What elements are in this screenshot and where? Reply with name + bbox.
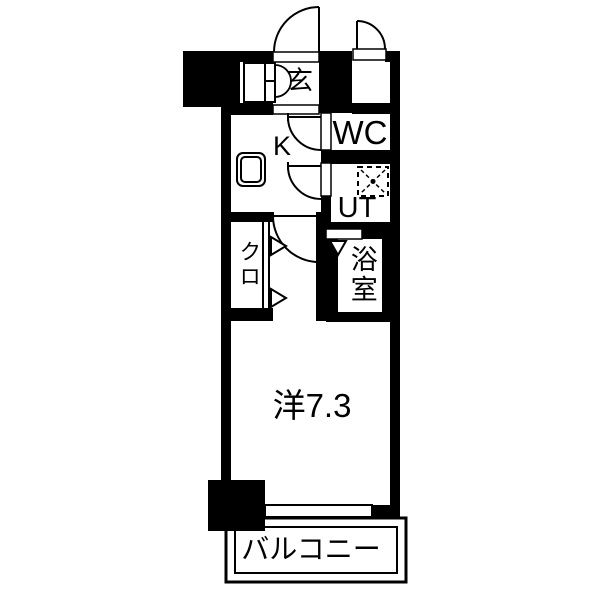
wall-top-left: [240, 51, 273, 62]
wall-closet-bottom: [231, 308, 273, 321]
label-utility: UT: [338, 194, 377, 224]
genkan-kitchen-threshold: [273, 105, 319, 114]
meterbox-threshold: [353, 49, 386, 60]
wall-genkan-kitchen: [231, 103, 273, 115]
shoe-cabinet-strip: [265, 63, 275, 102]
washer-center-dot: [371, 179, 376, 184]
wall-left: [221, 107, 231, 484]
label-balcony: バルコニー: [241, 536, 380, 565]
wall-bath-bottom: [326, 312, 390, 322]
wall-corridor-top: [231, 212, 273, 222]
wall-bottom-left-pillar: [208, 480, 265, 531]
label-kitchen: K: [273, 133, 291, 161]
floor-plan-canvas: 玄 K WC UT 浴室 クロ 洋7.3 バルコニー: [0, 0, 600, 600]
entrance-threshold: [273, 52, 319, 62]
wall-bath-right: [382, 238, 390, 321]
sink-inner: [241, 157, 261, 182]
ut-doorway: [321, 163, 331, 196]
wc-doorway: [321, 113, 331, 150]
wall-genkan-right-pillar: [319, 51, 352, 113]
label-closet: クロ: [237, 240, 259, 290]
wall-under-meterbox: [352, 103, 390, 114]
kitchen-sink: [237, 153, 265, 186]
wall-bottom-right-chunk: [372, 505, 400, 518]
wall-corridor-right: [316, 212, 326, 321]
label-main-room: 洋7.3: [273, 389, 352, 423]
window-opening: [265, 505, 372, 517]
label-genkan: 玄: [287, 68, 313, 95]
label-bath: 浴室: [347, 245, 375, 305]
wall-right: [390, 51, 400, 505]
wall-wc-ut-divider: [331, 150, 390, 164]
label-wc: WC: [333, 116, 388, 150]
wall-bath-top-right: [362, 229, 390, 239]
bath-door-sliver: [326, 229, 362, 239]
shoe-cabinet-box: [244, 63, 265, 102]
wall-wc-seg1: [321, 150, 331, 164]
wall-top-left-block: [183, 51, 240, 107]
